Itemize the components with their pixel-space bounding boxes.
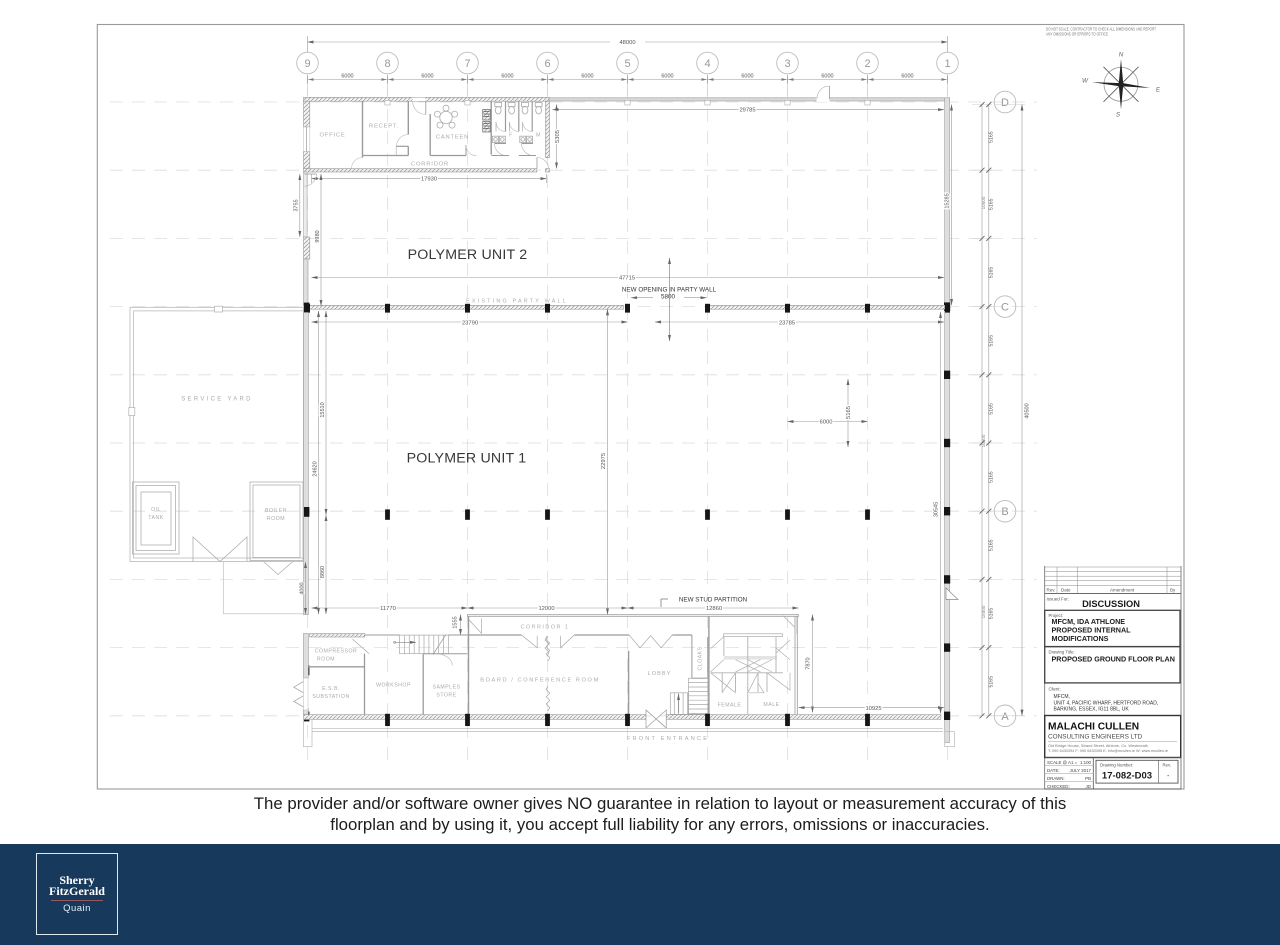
svg-text:Drawing Number:: Drawing Number: (1100, 763, 1133, 768)
svg-text:PB: PB (1085, 776, 1091, 781)
svg-text:Old Bridge House, Strand Stree: Old Bridge House, Strand Street, Athlone… (1048, 744, 1148, 748)
svg-text:N: N (1119, 51, 1124, 58)
svg-text:B: B (1001, 506, 1008, 518)
svg-text:12860: 12860 (706, 606, 722, 612)
svg-text:6000: 6000 (341, 74, 353, 80)
svg-text:Issued For:: Issued For: (1047, 597, 1070, 602)
svg-text:17930: 17930 (421, 177, 437, 183)
svg-text:47715: 47715 (619, 276, 635, 282)
svg-text:SCALE @ A1 =: SCALE @ A1 = (1047, 760, 1078, 765)
svg-text:CORRIDOR: CORRIDOR (411, 162, 449, 168)
svg-text:8860: 8860 (320, 566, 326, 578)
svg-text:5165: 5165 (989, 131, 995, 143)
svg-text:BARKING, ESSEX, IG11 8BL, UK: BARKING, ESSEX, IG11 8BL, UK (1054, 707, 1130, 713)
svg-text:UNIT 4, PACIFIC WHARF, HERTFOR: UNIT 4, PACIFIC WHARF, HERTFORD ROAD, (1054, 700, 1159, 706)
svg-text:48000: 48000 (619, 40, 635, 46)
svg-text:10925: 10925 (865, 706, 881, 712)
svg-text:6000: 6000 (421, 74, 433, 80)
svg-text:D: D (1001, 97, 1009, 109)
svg-text:BOILER: BOILER (265, 508, 287, 514)
svg-text:9980: 9980 (315, 230, 321, 242)
svg-text:F: F (509, 133, 513, 139)
svg-text:MFCM,: MFCM, (1054, 694, 1070, 700)
svg-text:DISCUSSION: DISCUSSION (1082, 599, 1140, 609)
svg-text:BOARD / CONFERENCE ROOM: BOARD / CONFERENCE ROOM (480, 678, 599, 684)
svg-text:SERVICE YARD: SERVICE YARD (181, 397, 253, 403)
svg-text:6000: 6000 (661, 74, 673, 80)
svg-text:W: W (1082, 77, 1089, 84)
svg-text:E: E (1156, 86, 1161, 93)
svg-text:T: 090 6430394 F: 090 643039: T: 090 6430394 F: 090 6430395 E: info@mc… (1048, 749, 1168, 753)
svg-text:EXISTING PARTY WALL: EXISTING PARTY WALL (466, 299, 568, 305)
svg-text:DATE:: DATE: (1047, 768, 1060, 773)
svg-text:5305: 5305 (555, 130, 561, 143)
svg-text:6000: 6000 (581, 74, 593, 80)
svg-text:23790: 23790 (462, 320, 478, 326)
svg-text:3: 3 (784, 58, 790, 70)
svg-text:A: A (1001, 711, 1009, 723)
svg-text:CLOAKS: CLOAKS (698, 646, 704, 670)
svg-text:Client:: Client: (1049, 687, 1061, 692)
svg-text:24620: 24620 (313, 461, 319, 476)
svg-text:POLYMER UNIT 1: POLYMER UNIT 1 (407, 451, 527, 467)
svg-text:POLYMER UNIT 2: POLYMER UNIT 2 (408, 247, 528, 263)
svg-text:OIL: OIL (151, 507, 161, 513)
svg-text:22975: 22975 (601, 453, 607, 469)
svg-text:5165: 5165 (989, 198, 995, 210)
svg-text:15510: 15510 (320, 402, 326, 417)
svg-text:C: C (1001, 302, 1009, 314)
svg-text:8: 8 (384, 58, 390, 70)
svg-text:ROOM: ROOM (267, 516, 285, 522)
svg-text:S: S (1116, 111, 1121, 118)
svg-text:MALE: MALE (763, 702, 779, 708)
svg-text:5800: 5800 (661, 294, 676, 301)
svg-text:E.S.B.: E.S.B. (322, 686, 340, 692)
svg-text:29785: 29785 (739, 108, 755, 114)
svg-text:Amendment: Amendment (1110, 588, 1135, 593)
svg-text:15285: 15285 (945, 193, 951, 208)
svg-text:10500: 10500 (981, 434, 986, 447)
svg-text:DRAWN:: DRAWN: (1047, 776, 1065, 781)
svg-text:6000: 6000 (741, 74, 753, 80)
svg-text:5165: 5165 (989, 267, 995, 279)
svg-text:CONSULTING ENGINEERS LTD: CONSULTING ENGINEERS LTD (1048, 734, 1143, 741)
svg-text:4000: 4000 (300, 582, 306, 594)
svg-text:MALACHI CULLEN: MALACHI CULLEN (1048, 722, 1139, 733)
svg-text:6000: 6000 (821, 74, 833, 80)
svg-text:15000: 15000 (981, 605, 986, 618)
svg-text:7: 7 (464, 58, 470, 70)
svg-text:4: 4 (704, 58, 710, 70)
svg-text:JD: JD (1086, 784, 1091, 789)
svg-text:RECEPT.: RECEPT. (369, 124, 399, 130)
svg-text:23785: 23785 (779, 320, 795, 326)
svg-text:NEW STUD PARTITION: NEW STUD PARTITION (679, 597, 748, 604)
svg-text:SAMPLES: SAMPLES (432, 685, 460, 691)
svg-text:10500: 10500 (981, 196, 986, 209)
svg-text:FRONT ENTRANCE: FRONT ENTRANCE (627, 736, 709, 742)
svg-text:CHECKED:: CHECKED: (1047, 784, 1070, 789)
svg-text:5165: 5165 (846, 406, 852, 419)
svg-text:SUBSTATION: SUBSTATION (312, 694, 349, 700)
svg-text:17-082-D03: 17-082-D03 (1102, 771, 1152, 782)
svg-text:5165: 5165 (989, 676, 995, 688)
svg-text:Date: Date (1061, 588, 1071, 593)
svg-text:PROPOSED GROUND FLOOR PLAN: PROPOSED GROUND FLOOR PLAN (1052, 655, 1175, 664)
svg-text:COMPRESSOR: COMPRESSOR (315, 649, 357, 655)
svg-text:WORKSHOP: WORKSHOP (376, 683, 411, 689)
svg-text:30545: 30545 (934, 502, 940, 517)
svg-text:By: By (1170, 588, 1176, 593)
svg-text:7870: 7870 (806, 657, 812, 669)
svg-text:11770: 11770 (380, 606, 396, 612)
svg-text:OFFICE: OFFICE (319, 133, 345, 139)
svg-text:5165: 5165 (989, 539, 995, 551)
svg-text:CANTEEN: CANTEEN (436, 135, 469, 141)
svg-text:LOBBY: LOBBY (648, 671, 672, 677)
svg-text:6000: 6000 (820, 420, 833, 426)
svg-text:MODIFICATIONS: MODIFICATIONS (1052, 634, 1109, 643)
svg-text:6000: 6000 (901, 74, 913, 80)
svg-text:5165: 5165 (989, 403, 995, 415)
svg-text:40500: 40500 (1025, 403, 1031, 418)
svg-text:STORE: STORE (436, 693, 456, 699)
svg-text:1555: 1555 (453, 616, 459, 628)
svg-text:1: 1 (944, 58, 950, 70)
svg-text:-: - (1167, 773, 1170, 780)
svg-text:6000: 6000 (501, 74, 513, 80)
svg-text:3755: 3755 (294, 199, 300, 211)
svg-text:2: 2 (864, 58, 870, 70)
svg-text:12000: 12000 (538, 606, 554, 612)
svg-text:FEMALE: FEMALE (718, 703, 742, 709)
svg-text:5: 5 (624, 58, 630, 70)
svg-text:9: 9 (304, 58, 310, 70)
svg-text:1:100: 1:100 (1080, 760, 1092, 765)
svg-text:5165: 5165 (989, 471, 995, 483)
svg-text:5165: 5165 (989, 608, 995, 620)
svg-text:Rev.: Rev. (1047, 588, 1056, 593)
svg-text:Rev.: Rev. (1163, 763, 1172, 768)
svg-text:CORRIDOR 1: CORRIDOR 1 (521, 625, 570, 631)
svg-text:5165: 5165 (989, 335, 995, 347)
svg-text:ROOM: ROOM (317, 657, 335, 663)
svg-text:M: M (536, 133, 541, 139)
svg-text:JULY 2017: JULY 2017 (1070, 768, 1092, 773)
svg-text:6: 6 (544, 58, 550, 70)
svg-text:TANK: TANK (148, 515, 163, 521)
svg-text:ANY OMISSIONS OR ERRORS TO OFF: ANY OMISSIONS OR ERRORS TO OFFICE (1046, 32, 1108, 37)
